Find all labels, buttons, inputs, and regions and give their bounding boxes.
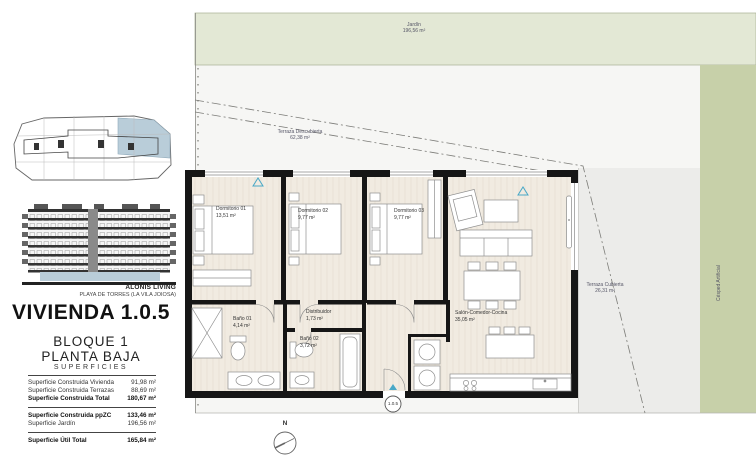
table-row: Superficie Jardín 196,56 m² [28, 420, 156, 428]
bed-dorm02 [289, 193, 341, 265]
sink-bano02 [290, 372, 314, 388]
label-distribuidor: Distribuidor1,73 m² [306, 309, 331, 322]
vanity-bano01 [228, 372, 280, 389]
floor-label: PLANTA BAJA [41, 349, 140, 364]
brand-location: PLAYA DE TORRES (LA VILA JOIOSA) [0, 292, 176, 298]
label-dormitorio-01: Dormitorio 0113,51 m² [216, 206, 246, 219]
label-salon-comedor-cocina: Salón-Comedor-Cocina35,05 m² [455, 310, 507, 323]
table-row: Superficie Construida Vivienda 91,98 m² [28, 379, 156, 387]
table-row-total: Superficie Útil Total 165,84 m² [28, 437, 156, 445]
label-dormitorio-02: Dormitorio 029,77 m² [298, 208, 328, 221]
table-rule [28, 375, 156, 376]
label-dormitorio-03: Dormitorio 039,77 m² [394, 208, 424, 221]
label-terraza-descubierta: Terraza Descubierta 62,38 m² [263, 129, 337, 141]
sofa [460, 230, 532, 256]
table-row: Superficie Construida Terrazas 88,69 m² [28, 387, 156, 395]
toilet-bano01 [230, 336, 246, 360]
brand-block: ALONIS LIVING PLAYA DE TORRES (LA VILA J… [0, 284, 176, 298]
info-panel: ALONIS LIVING PLAYA DE TORRES (LA VILA J… [0, 0, 182, 456]
bed-dorm03 [370, 193, 422, 265]
table-separator [28, 407, 156, 408]
unit-entry-label: 1.0.5 [385, 401, 401, 406]
label-jardin: Jardín 196,56 m² [382, 22, 446, 34]
table-row-total: Superficie Construida Total 180,67 m² [28, 395, 156, 403]
key-plan-drawing [8, 110, 176, 198]
bathtub-bano02 [340, 334, 360, 390]
table-row: Superficie Construida ppZC 133,46 m² [28, 412, 156, 420]
block-label: BLOQUE 1 [53, 334, 129, 349]
label-bano-02: Baño 023,72 m² [300, 336, 319, 349]
label-cesped-artificial: Césped Artificial [716, 247, 724, 319]
elevation-drawing [22, 204, 176, 288]
wardrobe-dorm01 [193, 270, 251, 286]
shower-bano01 [192, 308, 222, 358]
page-title: VIVIENDA 1.0.5 [0, 301, 182, 325]
brand-name: ALONIS LIVING [0, 284, 176, 291]
label-bano-01: Baño 014,14 m² [233, 316, 252, 329]
north-compass [274, 432, 296, 454]
surfaces-table: Superficie Construida Vivienda 91,98 m² … [28, 379, 156, 445]
wardrobe-dorm03 [428, 180, 441, 238]
table-separator [28, 432, 156, 433]
north-label: N [278, 420, 292, 427]
kitchen-island [486, 327, 534, 358]
coffee-table [484, 200, 518, 222]
dining-table [464, 262, 520, 309]
block-floor-subtitle: BLOQUE 1 PLANTA BAJA [0, 334, 182, 364]
kitchen-counter [450, 374, 571, 391]
surfaces-table-title: SUPERFICIES [0, 364, 182, 371]
label-terraza-cubierta: Terraza Cubierta 26,31 m² [568, 282, 642, 294]
